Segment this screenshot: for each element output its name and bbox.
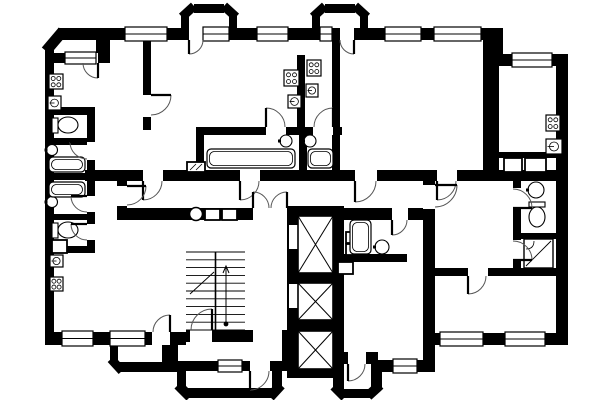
stove-icon [49,74,63,89]
floor-plan [0,0,600,400]
washbasin-icon [280,135,292,147]
stove-icon [307,60,321,76]
duct-box [504,158,522,172]
duct-box [205,209,220,220]
garbage-chute-icon [190,208,203,221]
washbasin-icon [47,197,58,208]
stove-icon [546,115,560,131]
duct-box [187,162,205,172]
toilet-icon [52,223,58,238]
stove-icon [50,277,63,291]
duct-box [338,262,353,274]
washbasin-icon [375,240,389,254]
stove-icon [284,70,299,86]
duct-box [222,209,237,220]
duct-box [525,158,546,172]
elevator-shafts [298,216,333,369]
washbasin-icon [47,145,58,156]
washbasin-icon [528,182,544,198]
floor-plan-svg [0,0,600,400]
duct-box [52,240,67,253]
washbasin-icon [304,135,316,147]
toilet-icon [52,118,58,133]
